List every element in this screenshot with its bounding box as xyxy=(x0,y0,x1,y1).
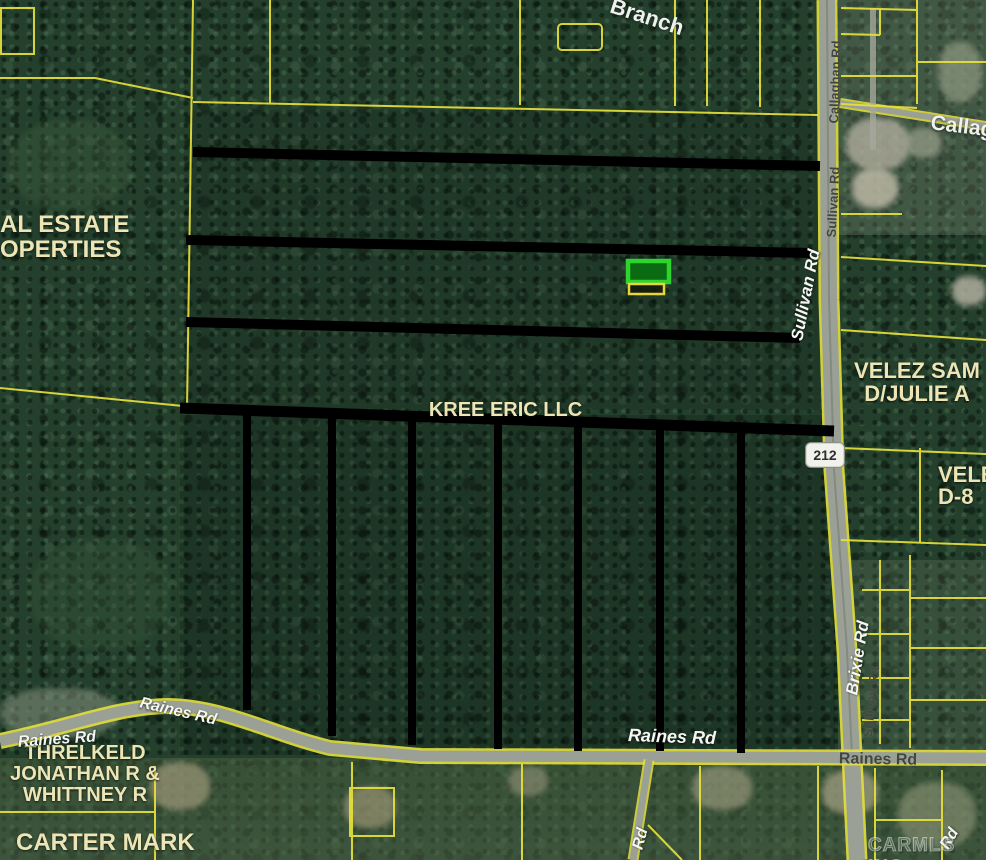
road-south-branch xyxy=(633,760,649,860)
carmls-watermark: CARMLS INC xyxy=(868,835,986,860)
road-topright xyxy=(840,8,986,150)
map-graphics xyxy=(0,0,986,860)
route-shield: 212 xyxy=(806,443,844,467)
highlighted-parcel[interactable] xyxy=(628,261,669,282)
road-raines xyxy=(0,706,986,758)
secondary-highlight-parcel[interactable] xyxy=(629,284,664,294)
satellite-parcel-map[interactable]: 212 AL ESTATE OPERTIES KREE ERIC LLC VEL… xyxy=(0,0,986,860)
annotation-lines xyxy=(180,152,834,753)
